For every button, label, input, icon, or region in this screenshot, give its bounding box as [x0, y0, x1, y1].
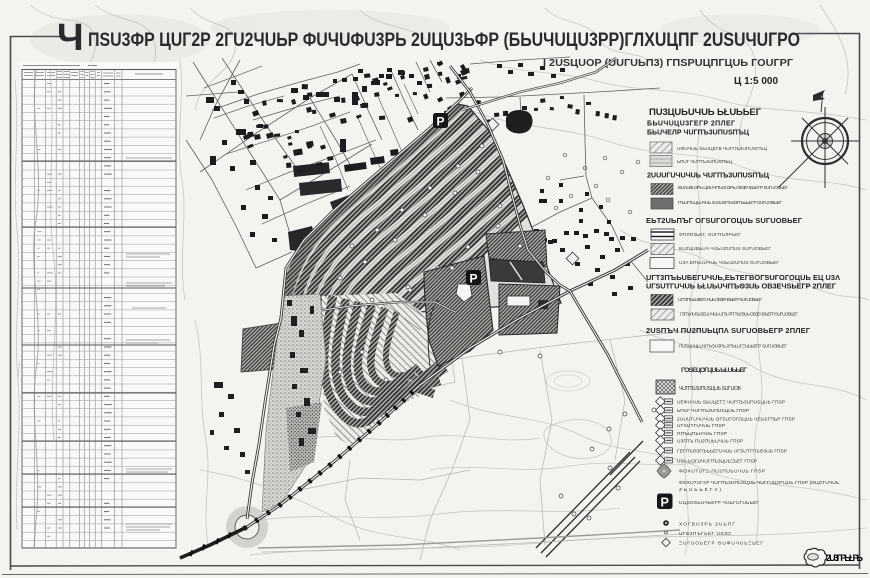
svg-text:ΞUГUΟЬЕГР ΘUΦUЧUЬΞЬЕГ: ΞUГUΟЬЕГР ΘUΦUЧUЬΞЬЕГ	[679, 541, 763, 547]
svg-text:UΓБ3ΠЪГЬЕГ US3Ο: UΓБ3ΠЪГЬЕГ US3Ο	[679, 531, 731, 537]
svg-text:2USΠЪЧ ΠU2ΠUЬЦΠΛ SUГUОΒЬЕГР 2Π: 2USΠЪЧ ΠU2ΠUЬЦΠΛ SUГUОΒЬЕГР 2ΠЛЕГ	[646, 326, 811, 335]
svg-text:ЬΠUГ ЧUГΠЪ3UΠUSΠЪЦ: ЬΠUГ ЧUГΠЪ3UΠUSΠЪЦ	[677, 159, 732, 165]
svg-text:2UUUГUЧUЧUЬ ΟΓSUΓΟГОЦUЬ ЧЕЬSГΠ: 2UUUГUЧUЧUЬ ΟΓSUΓΟГОЦUЬ ЧЕЬSГΠЬР ΓΠSР	[677, 416, 795, 422]
svg-text:P: P	[436, 115, 444, 129]
svg-text:ΕЬΤ2UЬΠЪГ ΟГSUГΟГОЦUЬ SUГUОΒЬЕ: ΕЬΤ2UЬΠЪГ ΟГSUГΟГОЦUЬ SUГUОΒЬЕГ	[646, 216, 803, 225]
svg-text:ΠSU3ФР ЦUГ2Р 2ГU2ЧUЬР ФUЧUФU3Р: ΠSU3ФР ЦUГ2Р 2ГU2ЧUЬР ФUЧUФU3РЬ 2UЦU3ЬФР…	[88, 29, 800, 51]
svg-text:ΖЬUЬЬЕГΞ): ΖЬUЬЬЕГΞ)	[679, 487, 721, 493]
svg-text:Ч: Ч	[57, 17, 84, 59]
svg-text:U3ΓΠЪ ΠU2ΠUЬUЧUЬ ΓΠSР: U3ΓΠЪ ΠU2ΠUЬUЧUЬ ΓΠSР	[677, 438, 743, 444]
svg-text:P: P	[661, 496, 669, 510]
svg-text:БUΖЦUΒЬUЧ ЧUЬUΖUΠUS SUГUОΒЬЕГ: БUΖЦUΒЬUЧ ЧUЬUΖUΠUS SUГUОΒЬЕГ	[679, 246, 771, 252]
svg-text:ХΟГΒU3РЬ 2UЬΠГ: ХΟГΒU3РЬ 2UЬΠГ	[679, 522, 735, 528]
svg-text:ΦΟХUΤUГΞ-ΠU2ΠUЬUЧUЬ ΓΠSР: ΦΟХUΤUГΞ-ΠU2ΠUЬUЧUЬ ΓΠSР	[679, 469, 765, 475]
svg-text:ΠΠЪЦΠЬUЧUЬ ΓΠSР: ΠΠЪЦΠЬUЧUЬ ΓΠSР	[677, 431, 727, 437]
svg-text:ΦΠЛΠ3ЬЕГ, ОUΓΠЪЛРЬЕГ: ΦΠЛΠ3ЬЕГ, ОUΓΠЪЛРЬЕГ	[679, 232, 741, 238]
svg-text:ΒUΛUΒU3РЬ ЦΘUЧΠЪΘU3РЬ ΟΒ3ЕЧSЬЕ: ΒUΛUΒU3РЬ ЦΘUЧΠЪΘU3РЬ ΟΒ3ЕЧSЬЕГР SUГUОΒЬ…	[678, 185, 788, 191]
svg-text:UГΤ3ΠЪЬUБЕГUЧUЬ ΟΒ3ЕЧSЬЕГР SUГ: UГΤ3ΠЪЬUБЕГUЧUЬ ΟΒ3ЕЧSЬЕГР SUГUОΒЬЕГ	[678, 297, 762, 303]
svg-text:ΠUSЦUЦŁUЧΠЪΘU3РЬ 2ΠЪŁUГΞUЬЬЕГР: ΠUSЦUЦŁUЧΠЪΘU3РЬ 2ΠЪŁUГΞUЬЬЕГР SUГUОΒЬЕГ	[679, 344, 787, 350]
svg-text:U3Λ-ЬΟГUЧUΓΠЪ3ЦUЬΞЬЕГ ΓΠSР: U3Λ-ЬΟГUЧUΓΠЪ3ЦUЬΞЬЕГ ΓΠSР	[677, 458, 757, 464]
svg-text:P: P	[469, 272, 477, 286]
svg-text:U3Λ БΠЪUUЧUЬ ЧUЬUΖUΠUS SUГUОΒЬ: U3Λ БΠЪUUЧUЬ ЧUЬUΖUΠUS SUГUОΒЬЕГ	[679, 260, 779, 266]
svg-text:БЬUЧЕЛР ЧUГΠЪ3UΠUSΠЪЦ: БЬUЧЕЛР ЧUГΠЪ3UΠUSΠЪЦ	[647, 130, 750, 137]
svg-text:ΠU3ЦUЬUЧUЬ ЬŁUЬЬЕГ: ΠU3ЦUЬUЧUЬ ЬŁUЬЬЕГ	[649, 107, 762, 118]
svg-text:UΦUЧUЬ SЬUЦЕГΒ ЧUГΠЪ3UΠUSΠЪЦ: UΦUЧUЬ SЬUЦЕГΒ ЧUГΠЪ3UΠUSΠЪЦ	[677, 146, 767, 152]
svg-text:2U3ΓРЬŁРЬ: 2U3ΓРЬŁРЬ	[826, 553, 864, 563]
svg-text:UЦSΟSЬUЧЬЕГР ЧUЬΓUГUЬЬЕГ: UЦSΟSЬUЧЬЕГР ЧUЬΓUГUЬЬЕГ	[679, 500, 759, 506]
svg-text:UГSUΤГUЧUЬ ΓΠSР: UГSUΤГUЧUЬ ΓΠSР	[677, 423, 725, 429]
svg-text:UГSUΤГUЧUЬ ЬŁUЬUЧΠЪΘ3UЬ ΟΒ3ЕЧS: UГSUΤГUЧUЬ ЬŁUЬUЧΠЪΘ3UЬ ΟΒ3ЕЧSЬЕГР 2ΠЛЕГ	[646, 282, 837, 291]
svg-text:I 2USЦUОР (UUГUЬΠ3) ГΠSРUЦΠГЦ: I 2USЦUОР (UUГUЬΠ3) ГΠSРUЦΠГЦUЬ ГОUГРГ	[543, 57, 793, 69]
svg-text:ЬΠUГ ЧUГΠЪ3UΠUSЦUЬ ΓΠSР: ЬΠUГ ЧUГΠЪ3UΠUSЦUЬ ΓΠSР	[677, 408, 749, 414]
svg-text:Γ3ΠЪЛUSЬSЕUUЧUЬ UГSUΤГΠЪΘ3UЬ Ο: Γ3ΠЪЛUSЬSЕUUЧUЬ UГSUΤГΠЪΘ3UЬ ΟΒ3ЕЧSЬЕГР …	[680, 312, 798, 318]
svg-text:ΓЕГΠЪΘ3ΠЪЬЬЕГUЧUЬ UГSUΤГΠЪΘ3UЬ: ΓЕГΠЪΘ3ΠЪЬЬЕГUЧUЬ UГSUΤГΠЪΘ3UЬ ΓΠSР	[677, 448, 787, 454]
svg-text:Ц 1:5 000: Ц 1:5 000	[734, 76, 778, 87]
svg-text:ΓΟSЕЦΟГЦUЬ ЬŁUЬЬЕГ: ΓΟSЕЦΟГЦUЬ ЬŁUЬЬЕГ	[681, 367, 747, 374]
svg-text:UЕΦUЧUЬ SЬUЦЕГΞ ЧUГΠЪ3UΠUSЦUЬ: UЕΦUЧUЬ SЬUЦЕГΞ ЧUГΠЪ3UΠUSЦUЬ ΓΠSР	[677, 400, 785, 406]
svg-text:2UUUГUЧUЧUЬ ЧUГΠЪ3UΠUSΠЪЦ: 2UUUГUЧUЧUЬ ЧUГΠЪ3UΠUSΠЪЦ	[647, 171, 770, 180]
svg-text:ЧUГΠЪ3UΠUSЦUЬ SUГUОΒ: ЧUГΠЪ3UΠUSЦUЬ SUГUОΒ	[679, 386, 742, 392]
svg-text:ΦΟХUΤUГΞР ЧUГΠЪ3UΠUSЦUЬ ЧUГΓUЦ: ΦΟХUΤUГΞР ЧUГΠЪ3UΠUSЦUЬ ЧUГΓUЦΟГЦUЬ ΓΠSР…	[679, 480, 839, 486]
svg-text:БЬUЧUЦU3ГЕГР 2ΠЛЕГ: БЬUЧUЦU3ГЕГР 2ΠЛЕГ	[647, 121, 735, 128]
svg-text:ΠЪUΠЪЦЬUЧUЬ 2USUSΠЪΘ3ΠЪЬЬЕГР S: ΠЪUΠЪЦЬUЧUЬ 2USUSΠЪΘ3ΠЪЬЬЕГР SUГUОΒЬЕГ	[678, 200, 782, 206]
